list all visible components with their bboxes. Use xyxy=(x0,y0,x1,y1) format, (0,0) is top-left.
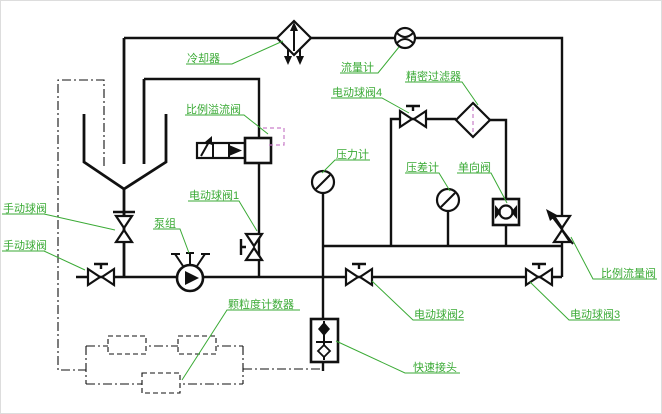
check-valve-ball xyxy=(500,206,513,219)
counter-module-1 xyxy=(108,336,146,354)
label-proportional-flow-valve: 比例流量阀 xyxy=(571,237,657,280)
label-proportional-relief-valve: 比例溢流阀 xyxy=(185,102,268,134)
label-flow-meter: 流量计 xyxy=(340,47,399,74)
pump-unit-symbol xyxy=(171,253,210,291)
label-differential-pressure-gauge: 压差计 xyxy=(405,160,450,191)
svg-text:颗粒度计数器: 颗粒度计数器 xyxy=(228,297,294,311)
label-cooler: 冷却器 xyxy=(186,41,283,65)
label-precision-filter: 精密过滤器 xyxy=(405,69,478,105)
svg-text:泵组: 泵组 xyxy=(154,216,176,230)
check-valve-symbol xyxy=(493,199,519,225)
label-pump-unit: 泵组 xyxy=(153,216,189,253)
svg-text:比例流量阀: 比例流量阀 xyxy=(601,266,656,280)
cooler-drain-arrowhead-right xyxy=(296,56,304,65)
svg-text:精密过滤器: 精密过滤器 xyxy=(406,69,461,83)
external-circuit-boundary xyxy=(58,80,323,393)
valve-handle xyxy=(532,264,546,269)
counter-module-3 xyxy=(142,373,180,393)
differential-pressure-gauge-symbol xyxy=(437,189,459,211)
label-electric-ball-valve-2: 电动球阀2 xyxy=(372,281,464,321)
counter-module-2 xyxy=(178,336,216,354)
proportional-flow-valve-symbol xyxy=(546,209,573,244)
svg-text:快速接头: 快速接头 xyxy=(413,361,457,374)
valve-handle xyxy=(406,106,420,111)
cooler-symbol xyxy=(277,21,311,65)
svg-text:单向阀: 单向阀 xyxy=(458,160,491,174)
label-manual-ball-valve-lower: 手动球阀 xyxy=(2,238,85,270)
label-check-valve: 单向阀 xyxy=(457,160,507,203)
label-electric-ball-valve-3: 电动球阀3 xyxy=(530,282,620,321)
valve-handle xyxy=(241,239,246,255)
electric-ball-valve-4-symbol xyxy=(400,106,426,127)
precision-filter-symbol xyxy=(456,103,490,137)
electric-ball-valve-2-symbol xyxy=(346,264,372,285)
manual-ball-valve-upper-symbol xyxy=(113,212,135,242)
manual-ball-valve-lower-symbol xyxy=(88,264,114,285)
boundary-left-line xyxy=(58,80,104,370)
label-quick-connector: 快速接头 xyxy=(336,341,460,374)
svg-text:电动球阀2: 电动球阀2 xyxy=(414,307,464,321)
proportional-relief-valve-symbol xyxy=(197,128,284,163)
cooler-drain-arrowhead-left xyxy=(284,56,292,65)
flow-meter-symbol xyxy=(395,28,415,48)
svg-text:压力计: 压力计 xyxy=(336,148,369,161)
pressure-gauge-symbol xyxy=(312,171,334,193)
svg-text:流量计: 流量计 xyxy=(341,60,374,74)
electric-ball-valve-3-symbol xyxy=(526,264,552,285)
label-electric-ball-valve-1: 电动球阀1 xyxy=(188,188,257,231)
svg-text:电动球阀3: 电动球阀3 xyxy=(570,307,620,321)
label-electric-ball-valve-4: 电动球阀4 xyxy=(331,85,409,113)
svg-text:电动球阀1: 电动球阀1 xyxy=(189,188,239,202)
hydraulic-schematic-canvas: 冷却器 流量计 精密过滤器 电动球阀4 比例溢流阀 压力计 压差计 单向阀 xyxy=(0,0,662,414)
svg-text:比例溢流阀: 比例溢流阀 xyxy=(186,102,241,116)
svg-text:冷却器: 冷却器 xyxy=(187,52,220,65)
svg-text:手动球阀: 手动球阀 xyxy=(3,201,47,215)
svg-text:电动球阀4: 电动球阀4 xyxy=(332,85,382,99)
svg-text:压差计: 压差计 xyxy=(406,160,439,174)
valve-handle xyxy=(94,264,108,269)
relief-main-body xyxy=(245,138,271,163)
label-pressure-gauge: 压力计 xyxy=(322,148,370,173)
quick-connector-symbol xyxy=(311,319,338,362)
valve-handle xyxy=(352,264,366,269)
svg-text:手动球阀: 手动球阀 xyxy=(3,238,47,252)
